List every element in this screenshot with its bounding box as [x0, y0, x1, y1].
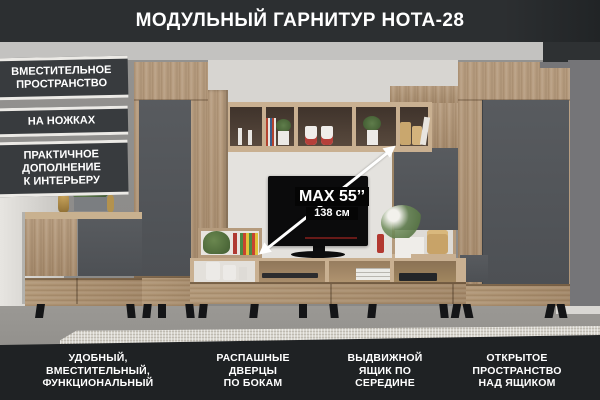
furniture-leg	[142, 304, 151, 318]
stand-drawers	[190, 282, 466, 304]
furniture-leg	[126, 304, 135, 318]
tv-diagonal-label: 138 см	[306, 207, 358, 220]
furniture-leg	[249, 304, 258, 318]
tv-size-label: MAX 55’’	[295, 187, 369, 206]
decor-red-candle	[233, 233, 237, 254]
decor-canister	[206, 262, 220, 280]
decor-red-bottle	[377, 234, 384, 253]
furniture-leg	[367, 304, 376, 318]
feature-line: ВЫДВИЖНОЙ	[312, 352, 458, 365]
feature-line: ОТКРЫТОЕ	[444, 352, 590, 365]
feature-label-left: НА НОЖКАХ	[0, 106, 128, 138]
decor-cup	[410, 237, 424, 254]
feature-line: К ИНТЕРЬЕРУ	[0, 174, 124, 190]
feature-line: ФУНКЦИОНАЛЬНЫЙ	[25, 377, 171, 390]
feature-label-bottom: УДОБНЫЙ, ВМЕСТИТЕЛЬНЫЙ, ФУНКЦИОНАЛЬНЫЙ	[25, 352, 171, 390]
tv-red-accent	[305, 237, 357, 239]
furniture-leg	[299, 304, 307, 318]
feature-line: ДВЕРЦЫ	[180, 365, 326, 378]
decor-gold-vase	[107, 195, 114, 212]
tv-base	[291, 251, 345, 258]
feature-label-left: ВМЕСТИТЕЛЬНОЕ ПРОСТРАНСТВО	[0, 56, 128, 101]
feature-line: СЕРЕДИНЕ	[312, 377, 458, 390]
feature-line: ПРОСТРАНСТВО	[0, 77, 124, 93]
feature-label-bottom: ОТКРЫТОЕ ПРОСТРАНСТВО НАД ЯЩИКОМ	[444, 352, 590, 390]
commode-wood-door	[25, 219, 77, 276]
commode-top	[25, 212, 142, 219]
decor-books	[266, 118, 276, 146]
decor-candlestick	[248, 130, 252, 145]
decor-canister	[223, 265, 236, 280]
decor-cup	[321, 126, 333, 145]
wall-right	[568, 60, 600, 308]
commode-grey-door	[78, 219, 142, 276]
footer-bar: УДОБНЫЙ, ВМЕСТИТЕЛЬНЫЙ, ФУНКЦИОНАЛЬНЫЙ Р…	[0, 334, 600, 400]
decor-canister	[427, 230, 448, 254]
page-title: МОДУЛЬНЫЙ ГАРНИТУР НОТА-28	[136, 10, 465, 32]
decor-keyboard	[262, 273, 318, 278]
wardrobe-right-grey-door	[482, 100, 569, 284]
feature-label-left: ПРАКТИЧНОЕ ДОПОЛНЕНИЕ К ИНТЕРЬЕРУ	[0, 140, 129, 198]
decor-cup	[305, 126, 317, 145]
feature-line: РАСПАШНЫЕ	[180, 352, 326, 365]
bridge-filler	[428, 103, 458, 153]
decor-tablet	[399, 273, 437, 281]
decor-canister	[400, 122, 411, 145]
furniture-leg	[439, 304, 448, 318]
decor-bouquet	[381, 205, 423, 240]
decor-plant	[203, 231, 230, 254]
feature-label-bottom: РАСПАШНЫЕ ДВЕРЦЫ ПО БОКАМ	[180, 352, 326, 390]
stand-drawer-seam	[330, 284, 332, 304]
cabinet-left-grey-door	[139, 100, 191, 276]
wardrobe-right-drawer	[458, 284, 570, 306]
feature-line: ЯЩИК ПО	[312, 365, 458, 378]
header-bar: МОДУЛЬНЫЙ ГАРНИТУР НОТА-28	[0, 0, 600, 42]
feature-label-bottom: ВЫДВИЖНОЙ ЯЩИК ПО СЕРЕДИНЕ	[312, 352, 458, 390]
decor-vase	[395, 238, 411, 258]
stand-cell-mid1	[259, 261, 325, 282]
furniture-leg	[158, 304, 166, 318]
wardrobe-right-step	[540, 62, 570, 68]
product-poster: MAX 55’’ 138 см УДОБНЫЙ, ВМЕСТИТЕЛЬНЫЙ, …	[0, 0, 600, 400]
decor-planter-box	[74, 197, 107, 211]
feature-line: НА НОЖКАХ	[0, 114, 124, 130]
feature-line: НАД ЯЩИКОМ	[444, 377, 590, 390]
feature-line: ПРОСТРАНСТВО	[444, 365, 590, 378]
feature-line: ВМЕСТИТЕЛЬНЫЙ,	[25, 365, 171, 378]
wardrobe-right	[458, 62, 570, 304]
shelf-cube	[230, 107, 262, 146]
furniture-leg	[329, 304, 338, 318]
decor-glass-jar	[239, 267, 247, 280]
decor-cup	[367, 130, 378, 145]
feature-line: ПО БОКАМ	[180, 377, 326, 390]
furniture-leg	[185, 304, 194, 318]
furniture-leg	[198, 304, 207, 318]
decor-books	[240, 233, 258, 255]
decor-plant	[363, 116, 381, 131]
decor-pot	[278, 131, 289, 145]
commode-drawer-seam	[76, 278, 78, 304]
decor-book-stack	[356, 268, 390, 280]
decor-candlestick	[238, 128, 242, 145]
stand-drawer-seam	[452, 284, 454, 304]
commode-drawer	[25, 278, 142, 306]
tv-neck	[313, 246, 325, 252]
commode	[22, 212, 142, 304]
feature-line: УДОБНЫЙ,	[25, 352, 171, 365]
